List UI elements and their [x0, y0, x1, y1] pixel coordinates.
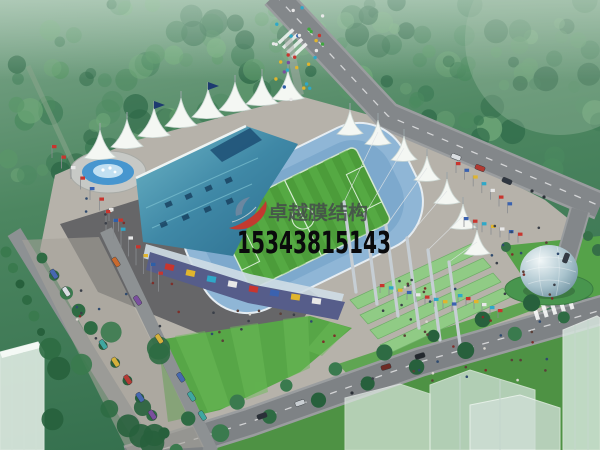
stadium-rendering: 卓越膜结构 15343815143 — [0, 0, 600, 450]
watermark-brand-text: 卓越膜结构 — [268, 201, 368, 224]
scene-svg: 卓越膜结构 15343815143 — [0, 0, 600, 450]
building-bottom-left — [0, 342, 44, 450]
watermark-phone-text: 15343815143 — [237, 226, 391, 261]
